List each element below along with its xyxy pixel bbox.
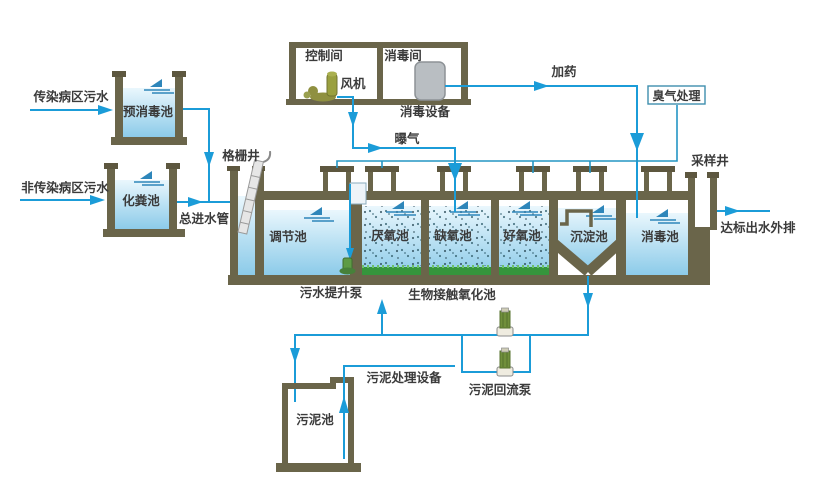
label-control-room: 控制间 [305,48,343,63]
diagram-svg: 传染病区污水 非传染病区污水 预消毒池 化粪池 总进水管 格栅井 控制间 风机 … [0,0,822,500]
arrow-right-icon [368,143,383,153]
label-fan: 风机 [340,76,366,91]
arrow-right-icon [188,197,203,207]
label-sedimentation-tank: 沉淀池 [570,229,608,244]
label-pre-disinfection-tank: 预消毒池 [123,104,174,119]
odor-collection-pipe [337,105,677,173]
wastewater-treatment-diagram: 传染病区污水 非传染病区污水 预消毒池 化粪池 总进水管 格栅井 控制间 风机 … [0,0,822,500]
pump-bypass-loop [462,335,530,372]
label-main-inlet-pipe: 总进水管 [179,211,229,226]
arrow-right-icon [98,105,113,115]
lift-pipe-box [350,183,366,204]
label-infectious-source: 传染病区污水 [32,89,109,104]
sampling-well [685,172,719,275]
label-dosing: 加药 [550,64,577,79]
biofilm-media-strip [362,267,549,275]
basin-floor [228,275,710,285]
label-disinfection-equipment: 消毒设备 [400,104,451,119]
arrow-right-icon [534,81,549,91]
arrow-down-icon [290,348,300,363]
arrow-right-icon [725,206,740,216]
label-disinfection-tank: 消毒池 [641,229,679,244]
arrow-up-icon [339,396,349,413]
basin-roof [264,191,688,200]
label-sludge-tank: 污泥池 [296,412,334,427]
label-odor-treatment: 臭气处理 [652,88,700,103]
arrow-down-icon [583,293,593,308]
label-outfall: 达标出水外排 [720,220,796,235]
label-sludge-treatment: 污泥处理设备 [366,370,442,385]
sludge-return-pump-icon [497,308,513,336]
arrow-down-icon [630,133,644,151]
arrow-up-icon [377,299,387,314]
outfall-pipe [717,206,770,216]
label-aeration: 曝气 [394,131,420,146]
label-anaerobic-tank: 厌氧池 [371,228,409,243]
arrow-right-icon [90,195,105,205]
label-bio-contact-tank: 生物接触氧化池 [408,287,496,302]
label-non-infectious-source: 非传染病区污水 [21,180,109,195]
label-disinfection-room: 消毒间 [384,48,422,63]
sludge-return-pump-icon [497,348,513,376]
label-septic-tank: 化粪池 [122,193,160,208]
fan-icon [304,72,338,102]
arrow-down-icon [348,112,358,127]
arrow-down-icon [204,152,214,167]
label-aerobic-tank: 好氧池 [502,228,541,243]
label-anoxic-tank: 缺氧池 [434,228,472,243]
label-lift-pump: 污水提升泵 [300,285,363,300]
disinfection-equipment-icon [415,62,445,100]
label-sludge-return-pump: 污泥回流泵 [469,382,532,397]
label-regulating-tank: 调节池 [269,229,307,244]
label-screen-well: 格栅井 [222,148,260,163]
label-sampling-well: 采样井 [690,153,729,168]
pre-disinfection-outlet-pipe [183,109,209,202]
